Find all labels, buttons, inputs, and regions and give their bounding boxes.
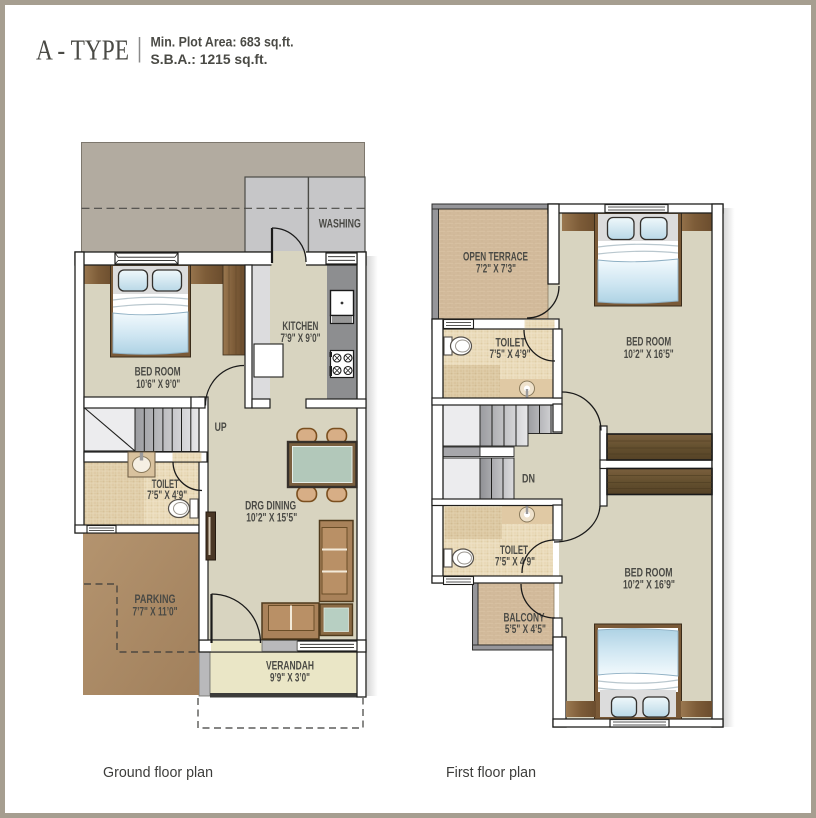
svg-text:Ground floor plan: Ground floor plan [103,764,213,781]
svg-text:BED ROOM: BED ROOM [625,566,673,580]
svg-text:7’5" X 4’9": 7’5" X 4’9" [490,349,531,361]
svg-text:A - TYPE: A - TYPE [36,35,129,67]
svg-text:10’2" X 16’5": 10’2" X 16’5" [624,349,674,361]
svg-text:PARKING: PARKING [135,592,176,606]
svg-text:7’7" X 11’0": 7’7" X 11’0" [133,607,178,619]
svg-text:UP: UP [215,420,227,434]
svg-text:9’9" X 3’0": 9’9" X 3’0" [270,673,310,685]
svg-text:TOILET: TOILET [496,336,526,350]
svg-text:OPEN TERRACE: OPEN TERRACE [463,250,528,264]
svg-text:10’2" X 15’5": 10’2" X 15’5" [246,513,297,525]
svg-text:5’5" X 4’5": 5’5" X 4’5" [505,624,546,636]
svg-text:BED ROOM: BED ROOM [135,365,181,379]
svg-text:7’2" X 7’3": 7’2" X 7’3" [476,264,516,276]
svg-text:WASHING: WASHING [319,217,361,231]
svg-text:TOILET: TOILET [152,477,179,491]
svg-text:7’5" X 4’9": 7’5" X 4’9" [495,557,535,569]
svg-text:DRG DINING: DRG DINING [245,499,296,513]
svg-text:BALCONY: BALCONY [504,611,545,625]
svg-text:Min. Plot Area: 683 sq.ft.: Min. Plot Area: 683 sq.ft. [151,35,294,50]
svg-text:BED ROOM: BED ROOM [626,335,671,349]
svg-text:First floor plan: First floor plan [446,764,536,781]
svg-text:S.B.A.: 1215 sq.ft.: S.B.A.: 1215 sq.ft. [151,52,268,67]
svg-text:10’6" X 9’0": 10’6" X 9’0" [136,379,180,391]
svg-text:VERANDAH: VERANDAH [266,659,314,673]
svg-text:KITCHEN: KITCHEN [282,319,318,333]
svg-text:TOILET: TOILET [500,543,528,557]
svg-text:10’2" X 16’9": 10’2" X 16’9" [623,580,675,592]
svg-text:DN: DN [522,472,535,486]
svg-text:7’9" X 9’0": 7’9" X 9’0" [281,333,321,345]
